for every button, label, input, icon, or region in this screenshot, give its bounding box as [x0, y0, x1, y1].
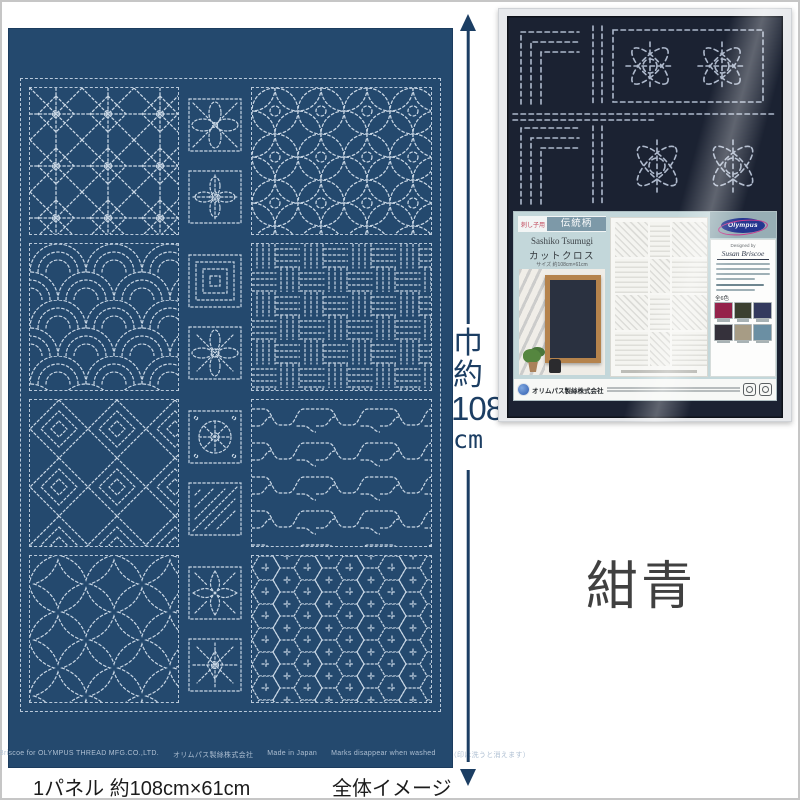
selvage-company: オリムパス製絲株式会社	[173, 750, 253, 760]
company-address-lines	[607, 387, 741, 392]
pattern-block-nested-diamonds	[29, 399, 179, 547]
swatch-crimson	[715, 303, 732, 318]
arrow-up-icon	[460, 14, 476, 31]
mini-square-leaf-cross	[187, 564, 243, 622]
mini-square-nested-triangles	[187, 480, 243, 538]
badge-prefix: 刺し子用	[521, 220, 545, 229]
panel-size-caption: 1パネル 約108cm×61cm	[33, 772, 250, 800]
olympus-globe-icon	[518, 384, 529, 395]
measure-char-approx: 約	[451, 360, 485, 392]
designer-name: Susan Briscoe	[717, 249, 769, 260]
pattern-block-asanoha-stars	[29, 87, 179, 235]
designed-by-text: Designed by	[715, 243, 771, 248]
badge-title: 伝統柄	[547, 217, 606, 231]
package-fabric: 刺し子用 伝統柄 Sashiko Tsumugi カットクロス サイズ 約108…	[507, 16, 783, 418]
mini-square-column-row4	[187, 555, 243, 703]
color-name-label: 紺青	[586, 544, 696, 619]
fabric-outer-stitch-border	[20, 78, 441, 712]
label-badge: 刺し子用 伝統柄	[518, 216, 606, 232]
swatch-steel-blue	[754, 325, 771, 340]
selvage-designed-by: Designed by Susan Briscoe for OLYMPUS TH…	[0, 750, 159, 760]
care-symbol-icon	[743, 383, 756, 396]
fabric-pattern-grid	[21, 79, 440, 711]
label-brand-band: Olympus	[710, 212, 776, 238]
width-measurement-label: 巾 約 108 cm	[451, 328, 485, 453]
pattern-block-fundo-curves	[29, 555, 179, 703]
pattern-block-meander	[251, 399, 432, 547]
company-name: オリムパス製絲株式会社	[532, 385, 604, 395]
package-stitch-patterns	[507, 16, 783, 212]
swatch-dark-olive	[735, 303, 752, 318]
arrow-down-icon	[460, 769, 476, 786]
pattern-block-kikko-hexagons	[251, 555, 432, 703]
pattern-block-basket-weave	[251, 243, 432, 391]
swatch-taupe	[735, 325, 752, 340]
care-symbol-icon	[759, 383, 772, 396]
selvage-made-in: Made in Japan	[267, 750, 317, 760]
fabric-panel: Designed by Susan Briscoe for OLYMPUS TH…	[8, 28, 453, 768]
mini-square-column-row2	[187, 243, 243, 391]
color-swatch-grid	[715, 303, 771, 342]
package-label: 刺し子用 伝統柄 Sashiko Tsumugi カットクロス サイズ 約108…	[514, 212, 776, 400]
overall-image-caption: 全体イメージ	[332, 772, 452, 800]
label-title-en: Sashiko Tsumugi	[518, 236, 606, 246]
mini-square-eight-point-star	[187, 636, 243, 694]
product-image: Designed by Susan Briscoe for OLYMPUS TH…	[0, 0, 800, 800]
decor-boot	[549, 359, 561, 373]
pattern-block-shippo-circles	[251, 87, 432, 235]
mini-square-column-row3	[187, 399, 243, 547]
mini-square-eight-petal-flower	[187, 324, 243, 382]
pattern-block-nowaki-arcs	[29, 243, 179, 391]
measure-number: 108	[451, 392, 485, 427]
swatch-charcoal	[715, 325, 732, 340]
measure-unit: cm	[451, 427, 485, 454]
mini-square-spiral-squares	[187, 252, 243, 310]
mini-square-hana-circle	[187, 408, 243, 466]
selvage-text-row: Designed by Susan Briscoe for OLYMPUS TH…	[8, 750, 453, 760]
framed-sashiko-panel	[545, 275, 601, 363]
selvage-wash-note: Marks disappear when washed	[331, 750, 436, 760]
label-fabric-layout-diagram	[611, 218, 707, 376]
product-package-photo: 刺し子用 伝統柄 Sashiko Tsumugi カットクロス サイズ 約108…	[498, 8, 792, 422]
olympus-logo-ring	[717, 217, 768, 237]
diagram-caption-bar	[621, 370, 697, 373]
colors-count-label: 全6色	[715, 294, 771, 302]
olympus-logo: Olympus	[721, 218, 765, 233]
label-company-strip: オリムパス製絲株式会社	[514, 379, 776, 400]
mini-square-four-petal-flower	[187, 96, 243, 154]
mini-square-cross-flower	[187, 168, 243, 226]
arrow-line-top	[467, 30, 470, 324]
swatch-navy	[754, 303, 771, 318]
label-size-line: サイズ 約108cm×61cm	[518, 261, 606, 268]
measure-char-width: 巾	[451, 328, 485, 360]
potted-plant	[523, 349, 541, 363]
mini-square-column-row1	[187, 87, 243, 235]
label-info-card: Designed by Susan Briscoe 全6色	[711, 240, 775, 376]
arrow-line-bottom	[467, 470, 470, 762]
label-title-jp: カットクロス	[518, 248, 606, 262]
label-lifestyle-photo	[519, 269, 605, 375]
width-measurement: 巾 約 108 cm	[451, 8, 485, 792]
